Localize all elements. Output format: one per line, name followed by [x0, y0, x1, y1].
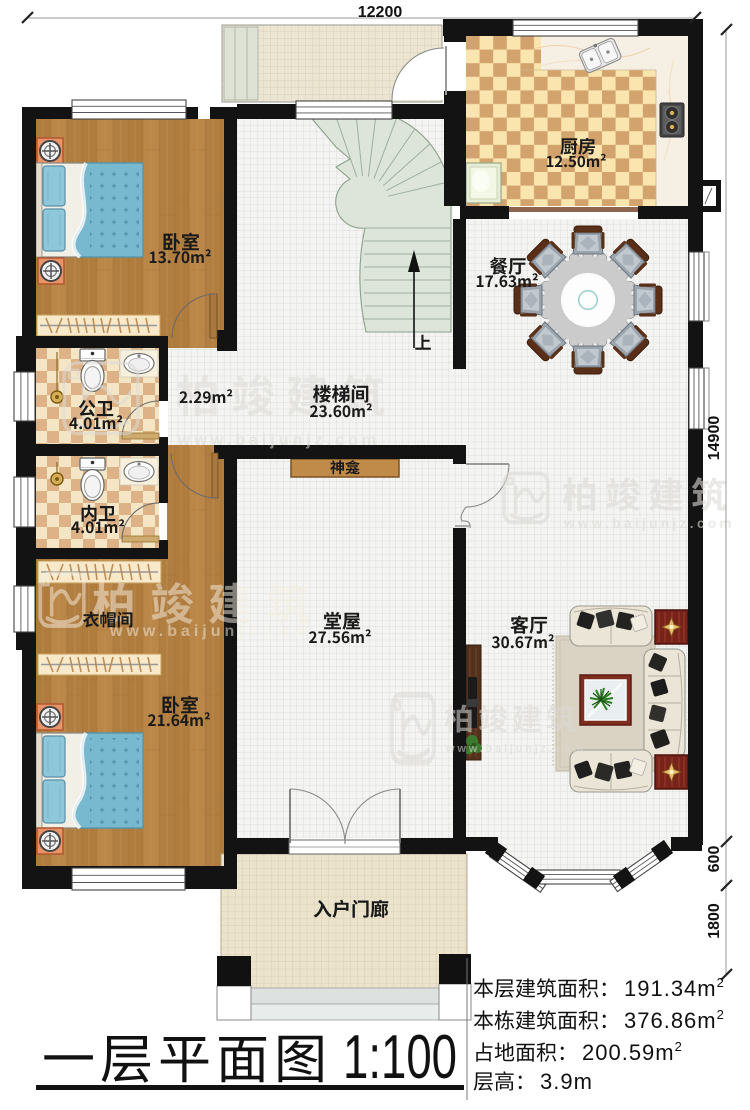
svg-text:12200: 12200	[358, 4, 403, 21]
svg-text:376.86m2: 376.86m2	[624, 1007, 725, 1033]
svg-text:191.34m2: 191.34m2	[624, 975, 725, 1001]
svg-text:3.9m: 3.9m	[540, 1069, 593, 1094]
svg-text:600: 600	[706, 846, 723, 873]
svg-text:www.baijunjz.com: www.baijunjz.com	[563, 516, 735, 531]
svg-text:www.baijunjz.com: www.baijunjz.com	[177, 432, 380, 449]
svg-text:www.baijunjz.com: www.baijunjz.com	[109, 623, 312, 640]
svg-text:14900: 14900	[706, 416, 723, 461]
svg-text:200.59m2: 200.59m2	[582, 1039, 683, 1065]
svg-text:www.baijunjz.com: www.baijunjz.com	[445, 743, 586, 755]
svg-text:1800: 1800	[706, 903, 723, 939]
svg-text:1:100: 1:100	[343, 1023, 457, 1092]
